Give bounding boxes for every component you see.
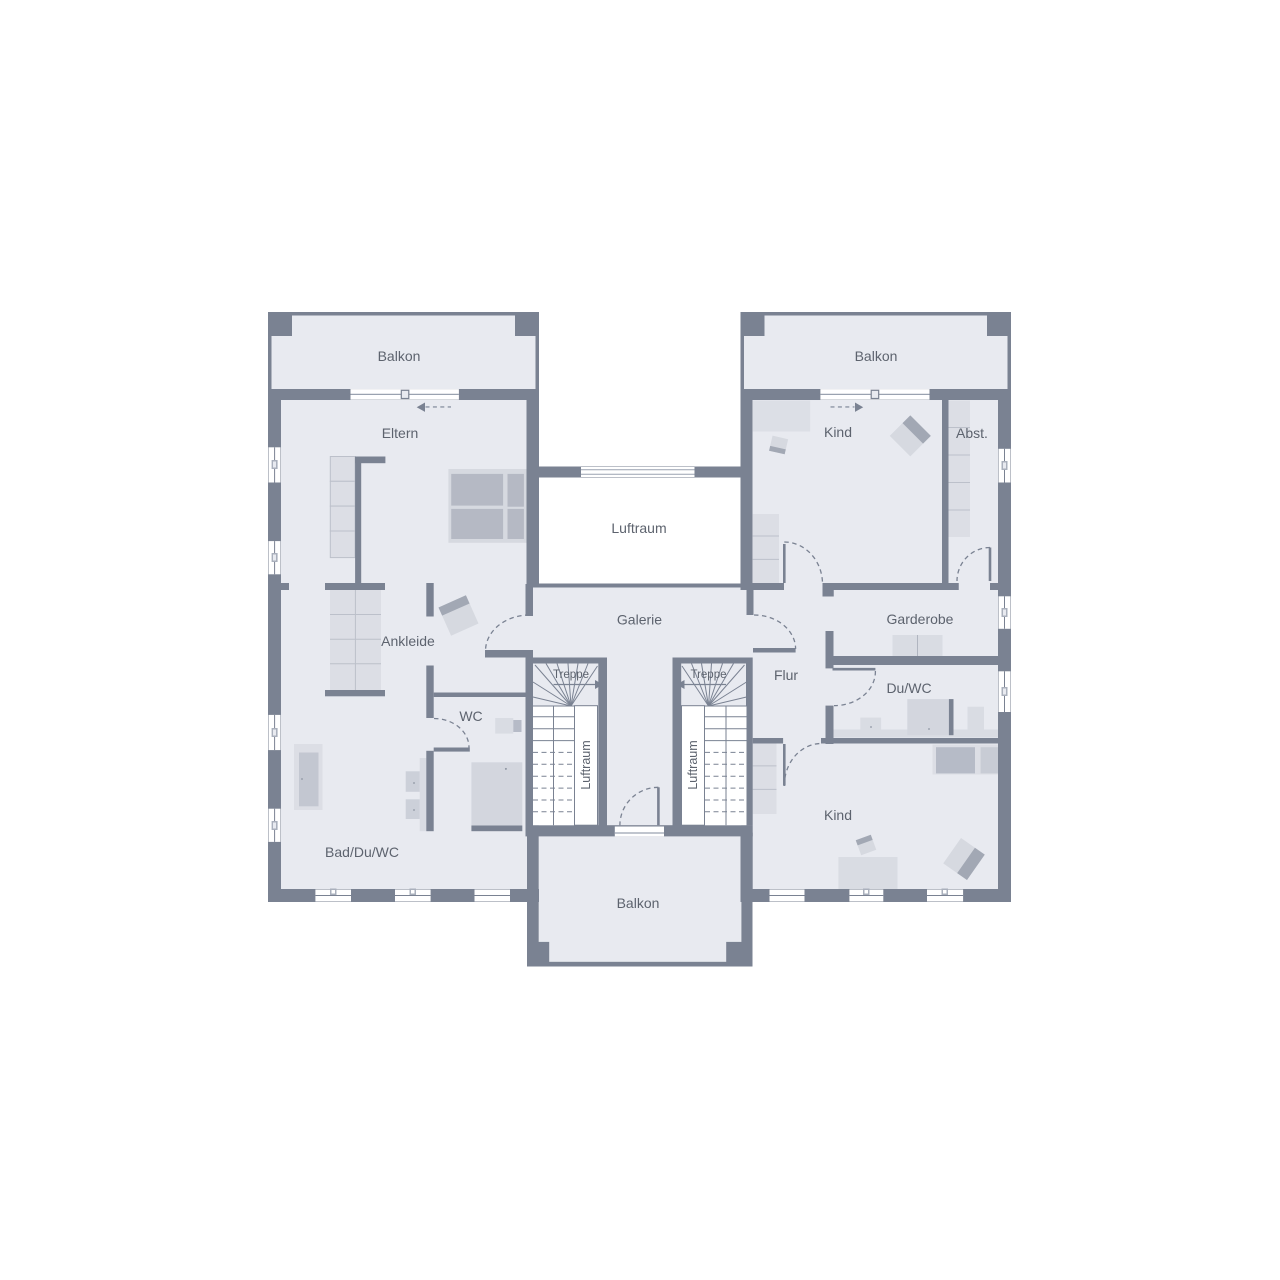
svg-text:WC: WC — [459, 708, 482, 724]
svg-text:Abst.: Abst. — [956, 425, 988, 441]
svg-text:Treppe: Treppe — [553, 669, 589, 681]
svg-text:Kind: Kind — [824, 424, 852, 440]
svg-text:Kind: Kind — [824, 807, 852, 823]
svg-text:Bad/Du/WC: Bad/Du/WC — [325, 844, 399, 860]
svg-text:Du/WC: Du/WC — [886, 680, 931, 696]
svg-text:Luftraum: Luftraum — [611, 520, 666, 536]
svg-text:Galerie: Galerie — [617, 612, 662, 628]
svg-text:Flur: Flur — [774, 667, 798, 683]
svg-text:Balkon: Balkon — [617, 895, 660, 911]
svg-text:Balkon: Balkon — [378, 348, 421, 364]
svg-text:Balkon: Balkon — [855, 348, 898, 364]
svg-text:Ankleide: Ankleide — [381, 633, 435, 649]
svg-text:Eltern: Eltern — [382, 425, 419, 441]
svg-text:Treppe: Treppe — [690, 669, 726, 681]
svg-text:Luftraum: Luftraum — [686, 740, 700, 789]
svg-text:Garderobe: Garderobe — [887, 611, 954, 627]
svg-text:Luftraum: Luftraum — [579, 740, 593, 789]
